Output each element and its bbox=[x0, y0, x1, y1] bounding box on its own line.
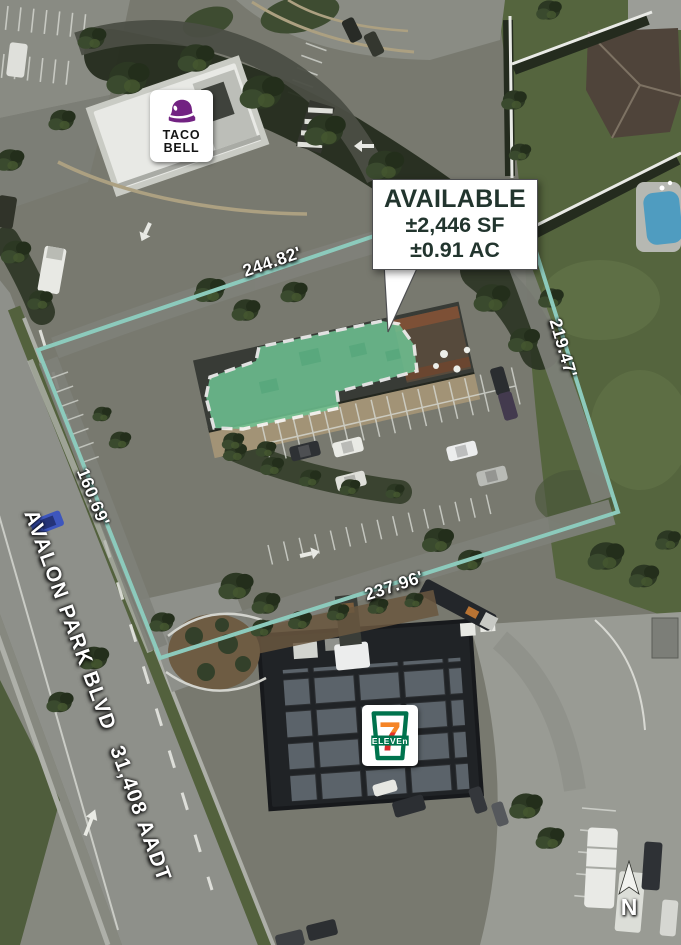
satellite-background bbox=[0, 0, 681, 945]
callout-acreage: ±0.91 AC bbox=[410, 238, 500, 263]
callout-title: AVAILABLE bbox=[384, 186, 526, 213]
taco-bell-text-bell: BELL bbox=[164, 142, 200, 155]
callout-square-feet: ±2,446 SF bbox=[405, 213, 504, 238]
seven-eleven-word: ELEVEn bbox=[372, 735, 408, 745]
north-arrow-icon bbox=[612, 860, 646, 898]
taco-bell-text-taco: TACO bbox=[163, 129, 201, 142]
seven-eleven-sign: 7 ELEVEn bbox=[362, 705, 418, 766]
taco-bell-logo-icon bbox=[165, 98, 199, 128]
taco-bell-sign: TACO BELL bbox=[150, 90, 213, 162]
seven-eleven-logo-icon: 7 ELEVEn bbox=[366, 710, 414, 762]
north-label: N bbox=[621, 896, 638, 919]
aerial-site-map: 244.82' 219.47' 160.69' 237.96' AVALON P… bbox=[0, 0, 681, 945]
north-arrow: N bbox=[607, 860, 651, 919]
available-callout: AVAILABLE ±2,446 SF ±0.91 AC bbox=[372, 179, 538, 270]
